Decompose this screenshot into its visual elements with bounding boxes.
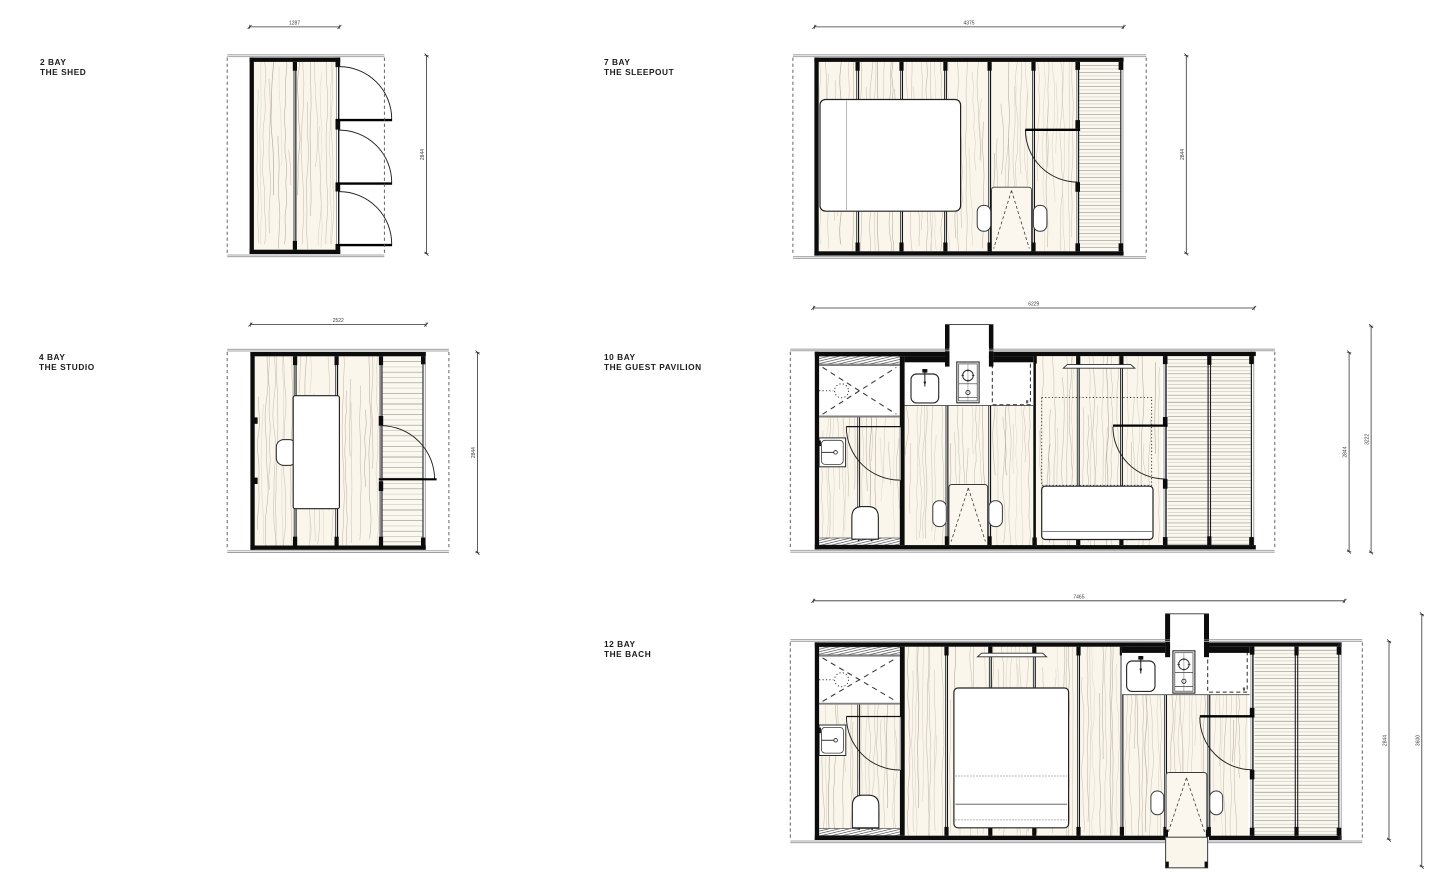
svg-text:2844: 2844 [1180, 149, 1186, 160]
svg-text:12 BAY: 12 BAY [604, 639, 636, 649]
svg-text:2844: 2844 [1343, 446, 1349, 457]
svg-text:10 BAY: 10 BAY [604, 352, 636, 362]
svg-text:1287: 1287 [289, 21, 300, 27]
svg-text:7 BAY: 7 BAY [604, 57, 630, 67]
svg-text:THE BACH: THE BACH [604, 649, 651, 659]
svg-text:THE STUDIO: THE STUDIO [39, 362, 95, 372]
svg-text:4375: 4375 [963, 21, 974, 27]
svg-text:2 BAY: 2 BAY [40, 57, 66, 67]
svg-text:THE SHED: THE SHED [40, 67, 86, 77]
svg-text:THE SLEEPOUT: THE SLEEPOUT [604, 67, 674, 77]
svg-text:2844: 2844 [420, 149, 426, 160]
svg-text:2844: 2844 [471, 447, 477, 458]
svg-text:3222: 3222 [1365, 434, 1371, 445]
svg-text:7465: 7465 [1073, 594, 1084, 600]
svg-text:4 BAY: 4 BAY [39, 352, 65, 362]
svg-text:6229: 6229 [1028, 302, 1039, 308]
svg-text:2844: 2844 [1383, 735, 1389, 746]
svg-text:2522: 2522 [333, 318, 344, 324]
svg-text:3600: 3600 [1415, 735, 1421, 746]
svg-text:THE GUEST PAVILION: THE GUEST PAVILION [604, 362, 702, 372]
